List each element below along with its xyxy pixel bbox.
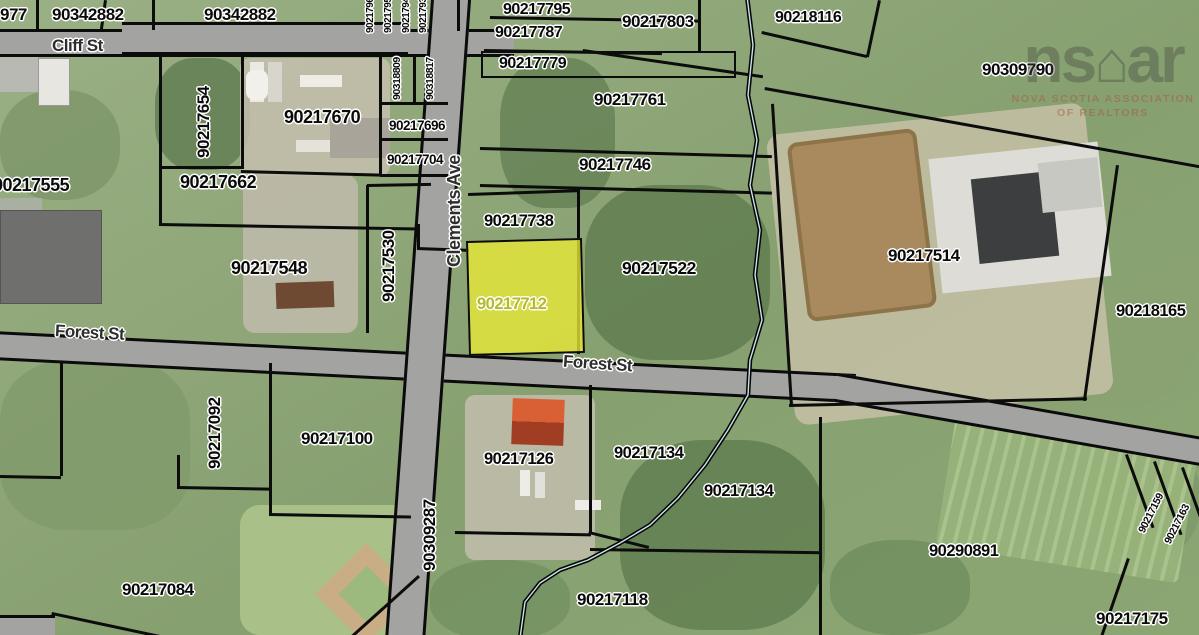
parcel-label-90217969[interactable]: 90217969 — [366, 0, 376, 33]
parcel-label-90218165[interactable]: 90218165 — [1116, 303, 1185, 320]
parcel-label-90217944[interactable]: 90217944 — [402, 0, 412, 33]
parcel-label-90217134-1[interactable]: 90217134 — [614, 445, 683, 462]
parcel-label-90217100[interactable]: 90217100 — [301, 430, 373, 447]
parcel-label-977[interactable]: 977 — [0, 6, 27, 23]
parcel-label-90218116[interactable]: 90218116 — [775, 10, 841, 26]
parcel-label-90217548[interactable]: 90217548 — [231, 259, 307, 277]
parcel-label-90217951[interactable]: 90217951 — [384, 0, 394, 33]
parcel-label-90217092[interactable]: 90217092 — [206, 397, 223, 469]
parcel-label-90318809[interactable]: 90318809 — [392, 57, 403, 100]
parcel-label-90318817[interactable]: 90318817 — [425, 57, 436, 100]
parcel-label-90217704[interactable]: 90217704 — [387, 153, 443, 167]
parcel-label-90342882-1[interactable]: 90342882 — [52, 6, 124, 23]
parcel-label-90217696[interactable]: 90217696 — [389, 119, 445, 133]
parcel-label-90217936[interactable]: 90217936 — [419, 0, 429, 33]
parcel-label-90217555[interactable]: 90217555 — [0, 176, 69, 194]
parcel-label-90217084[interactable]: 90217084 — [122, 581, 194, 598]
parcel-label-90217662[interactable]: 90217662 — [180, 173, 256, 191]
parcel-label-90217530[interactable]: 90217530 — [380, 230, 397, 302]
parcel-label-90217712-highlighted[interactable]: 90217712 — [477, 296, 546, 313]
street-label-cliff: Cliff St — [52, 37, 103, 54]
street-label-forest-west: Forest St — [55, 322, 125, 343]
parcel-label-90290891[interactable]: 90290891 — [929, 543, 998, 560]
street-label-clements: Clements Ave — [445, 155, 463, 267]
parcel-label-90309790[interactable]: 90309790 — [982, 61, 1054, 78]
parcel-label-90217795[interactable]: 90217795 — [503, 2, 570, 18]
parcel-label-90217787[interactable]: 90217787 — [495, 25, 562, 41]
parcel-label-90217803[interactable]: 90217803 — [622, 13, 694, 30]
map-canvas[interactable]: Cliff St Forest St Forest St Clements Av… — [0, 0, 1199, 635]
parcel-label-90217761[interactable]: 90217761 — [594, 91, 666, 108]
parcel-label-90217118[interactable]: 90217118 — [577, 591, 648, 608]
parcel-label-90217738[interactable]: 90217738 — [484, 213, 553, 230]
parcel-label-90217654[interactable]: 90217654 — [195, 86, 212, 158]
parcel-label-90217670[interactable]: 90217670 — [284, 108, 360, 126]
parcel-label-90217175[interactable]: 90217175 — [1096, 610, 1168, 627]
street-label-forest-center: Forest St — [562, 353, 632, 375]
parcel-label-90217126[interactable]: 90217126 — [484, 451, 553, 468]
parcel-label-90217522[interactable]: 90217522 — [622, 260, 696, 278]
parcel-label-90342882-2[interactable]: 90342882 — [204, 6, 276, 23]
parcel-label-90309287[interactable]: 90309287 — [421, 499, 438, 571]
parcel-label-90217746[interactable]: 90217746 — [579, 156, 651, 173]
parcel-label-90217514[interactable]: 90217514 — [888, 247, 960, 264]
parcel-label-90217134-2[interactable]: 90217134 — [704, 483, 773, 500]
parcel-label-90217779[interactable]: 90217779 — [499, 56, 566, 72]
